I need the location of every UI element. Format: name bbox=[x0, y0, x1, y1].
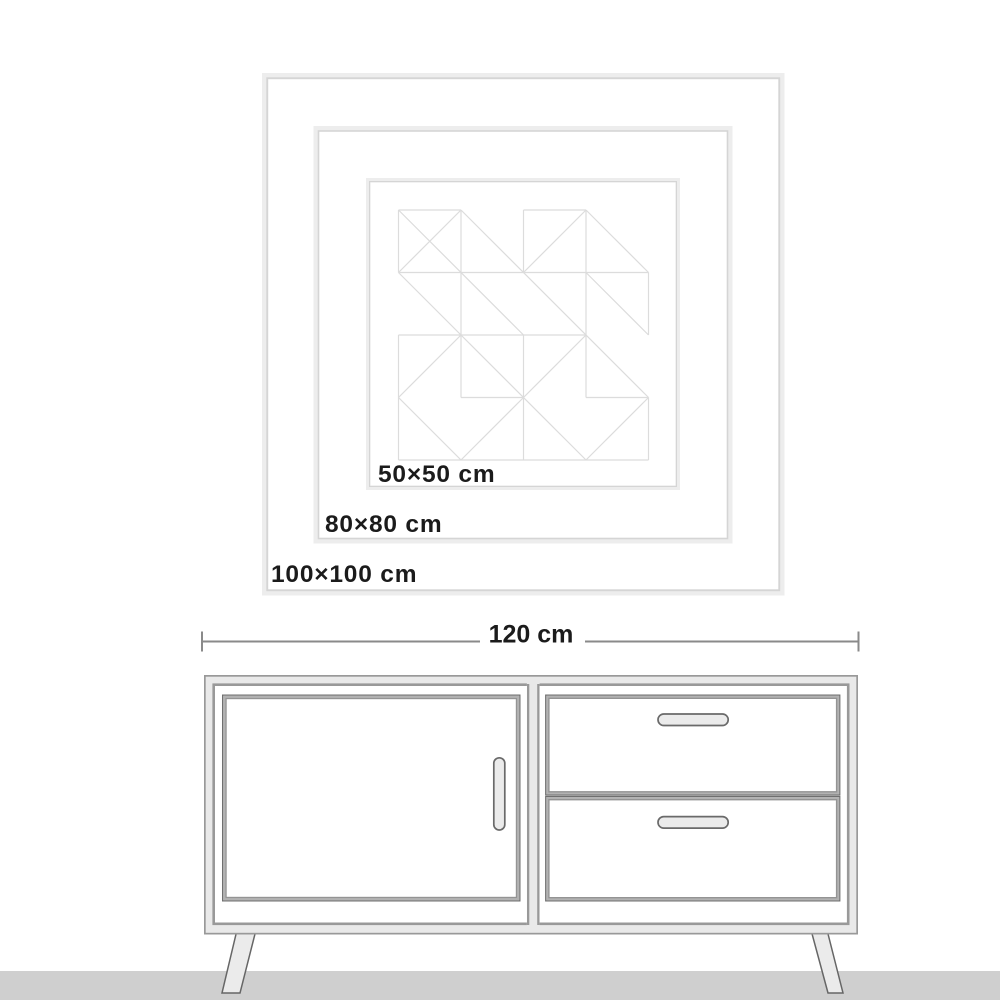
svg-text:50×50 cm: 50×50 cm bbox=[378, 461, 495, 488]
svg-text:120 cm: 120 cm bbox=[489, 621, 574, 649]
svg-text:80×80 cm: 80×80 cm bbox=[325, 511, 442, 538]
svg-text:100×100 cm: 100×100 cm bbox=[271, 561, 417, 588]
